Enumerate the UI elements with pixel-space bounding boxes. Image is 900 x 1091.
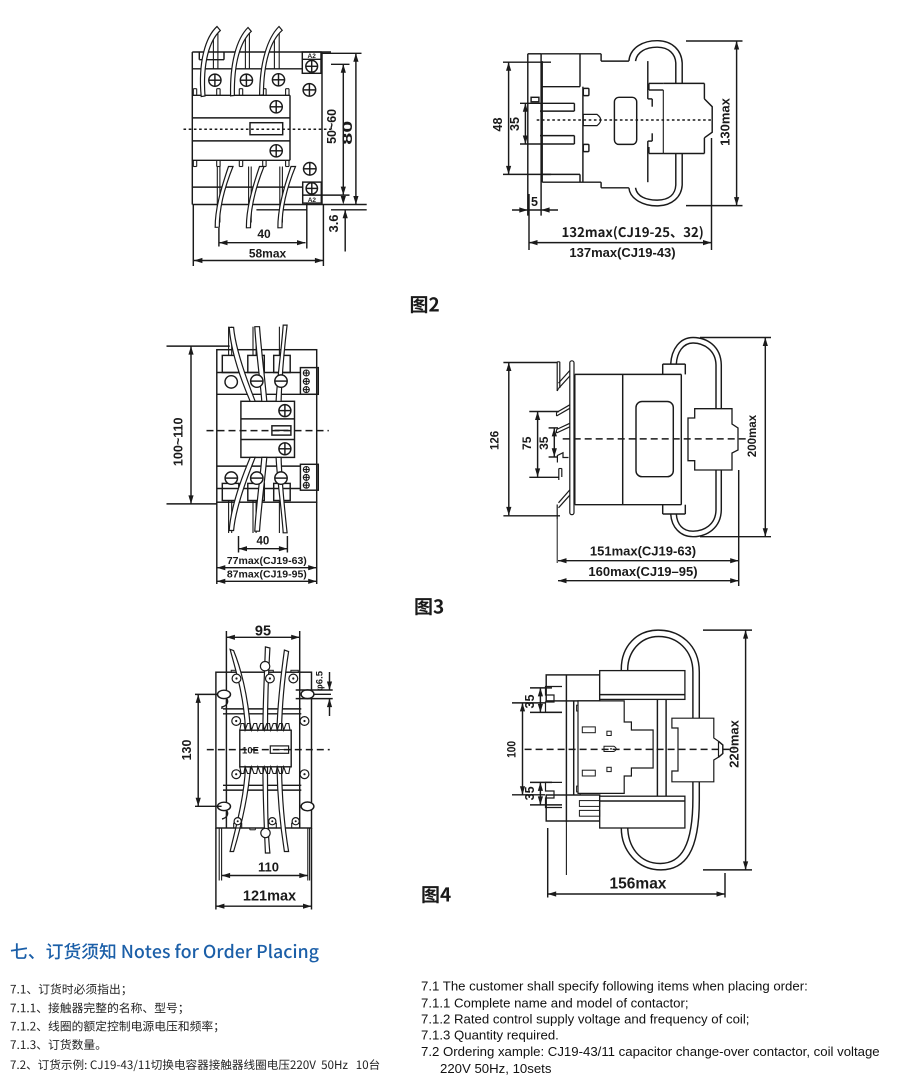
svg-text:220V 50Hz, 10sets: 220V 50Hz, 10sets: [440, 1061, 552, 1076]
svg-text:35: 35: [508, 117, 522, 131]
svg-text:φ6.5: φ6.5: [314, 670, 325, 691]
svg-text:58max: 58max: [249, 247, 287, 261]
svg-text:87max(CJ19-95): 87max(CJ19-95): [227, 569, 307, 581]
svg-text:7.1.3 Quantity required.: 7.1.3 Quantity required.: [421, 1028, 559, 1043]
svg-text:75: 75: [520, 436, 534, 450]
svg-text:3.6: 3.6: [326, 214, 341, 232]
svg-text:200max: 200max: [747, 414, 759, 457]
svg-text:77max(CJ19-63): 77max(CJ19-63): [227, 555, 307, 567]
svg-text:130max: 130max: [718, 97, 733, 145]
svg-text:A2: A2: [308, 53, 317, 60]
svg-text:48: 48: [491, 118, 505, 132]
svg-text:7.1.2 Rated control supply vol: 7.1.2 Rated control supply voltage and f…: [421, 1012, 749, 1027]
svg-text:151max(CJ19-63): 151max(CJ19-63): [590, 544, 696, 559]
svg-text:137max(CJ19-43): 137max(CJ19-43): [569, 245, 675, 260]
svg-text:7.2 Ordering xample: CJ19-43/1: 7.2 Ordering xample: CJ19-43/11 capacito…: [421, 1044, 880, 1059]
svg-text:156max: 156max: [610, 876, 667, 893]
svg-text:5: 5: [531, 195, 538, 209]
svg-text:A2: A2: [308, 197, 317, 204]
svg-text:35: 35: [523, 694, 537, 708]
svg-text:160max(CJ19–95): 160max(CJ19–95): [588, 564, 697, 579]
svg-text:126: 126: [490, 431, 502, 450]
svg-text:130: 130: [180, 740, 194, 761]
svg-text:35: 35: [537, 436, 551, 450]
svg-text:80: 80: [339, 120, 355, 144]
svg-text:50~60: 50~60: [324, 109, 339, 144]
svg-text:121max: 121max: [243, 889, 296, 905]
svg-text:100~110: 100~110: [172, 417, 186, 466]
svg-text:35: 35: [523, 786, 537, 800]
svg-text:110: 110: [258, 860, 279, 875]
svg-text:7.1 The customer shall specify: 7.1 The customer shall specify following…: [421, 979, 808, 994]
svg-text:10E: 10E: [242, 746, 259, 757]
svg-text:95: 95: [255, 624, 271, 640]
svg-text:100: 100: [507, 741, 519, 758]
svg-text:7.1.1 Complete name and model: 7.1.1 Complete name and model of contact…: [421, 995, 689, 1010]
svg-text:40: 40: [257, 227, 271, 241]
svg-text:220max: 220max: [727, 719, 742, 767]
svg-text:40: 40: [257, 536, 270, 548]
